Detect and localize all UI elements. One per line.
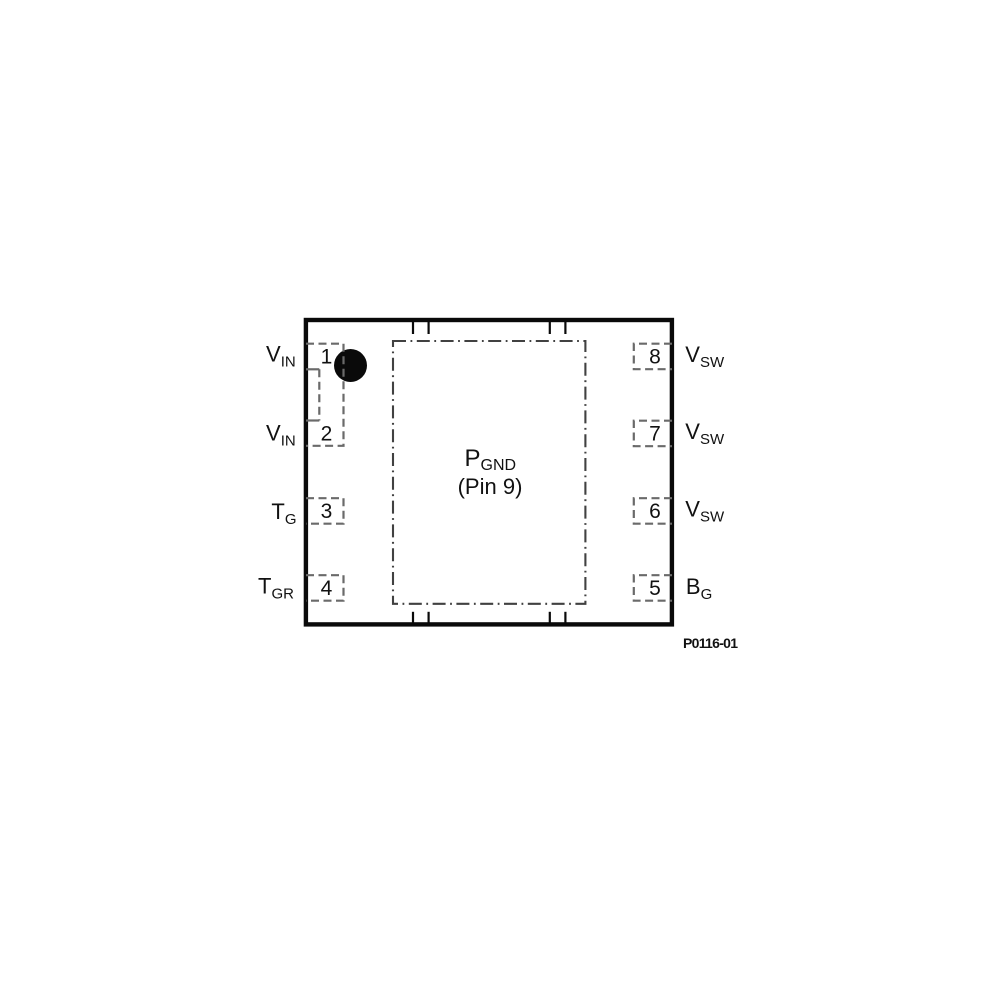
svg-text:4: 4 xyxy=(321,577,333,600)
svg-text:8: 8 xyxy=(649,346,661,369)
svg-text:(Pin 9): (Pin 9) xyxy=(458,474,523,499)
svg-text:P0116-01: P0116-01 xyxy=(683,635,738,651)
svg-text:5: 5 xyxy=(649,577,661,600)
svg-text:7: 7 xyxy=(649,423,661,446)
svg-text:3: 3 xyxy=(321,500,333,523)
svg-text:2: 2 xyxy=(321,423,333,446)
svg-text:6: 6 xyxy=(649,500,661,523)
svg-text:1: 1 xyxy=(321,346,333,369)
